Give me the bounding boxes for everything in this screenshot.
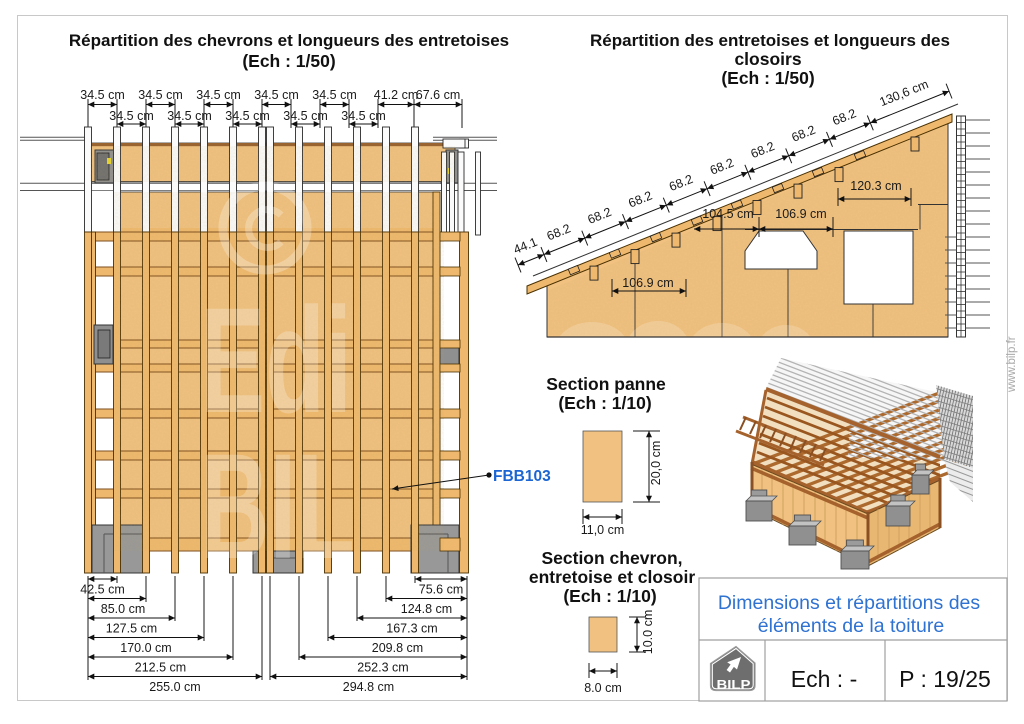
svg-text:41.2 cm: 41.2 cm: [374, 88, 418, 102]
svg-text:20,0 cm: 20,0 cm: [649, 441, 663, 485]
svg-text:34.5 cm: 34.5 cm: [109, 109, 153, 123]
svg-text:Dimensions et répartitions des: Dimensions et répartitions des: [718, 592, 981, 614]
svg-text:FBB103: FBB103: [493, 468, 551, 485]
svg-text:34.5 cm: 34.5 cm: [138, 88, 182, 102]
svg-text:Ech : -: Ech : -: [791, 666, 857, 692]
svg-text:www.bilp.fr: www.bilp.fr: [1006, 336, 1018, 393]
svg-text:42.5 cm: 42.5 cm: [80, 583, 124, 597]
svg-text:212.5 cm: 212.5 cm: [135, 661, 186, 675]
svg-text:167.3 cm: 167.3 cm: [386, 622, 437, 636]
svg-text:75.6 cm: 75.6 cm: [419, 583, 463, 597]
svg-text:11,0 cm: 11,0 cm: [581, 523, 625, 537]
svg-text:209.8 cm: 209.8 cm: [372, 641, 423, 655]
svg-text:Section chevron,: Section chevron,: [541, 548, 682, 568]
svg-text:Edi: Edi: [200, 276, 352, 444]
svg-text:Répartition des chevrons et lo: Répartition des chevrons et longueurs de…: [69, 31, 509, 50]
svg-text:170.0 cm: 170.0 cm: [120, 641, 171, 655]
svg-text:104.5 cm: 104.5 cm: [702, 207, 753, 221]
svg-text:8.0 cm: 8.0 cm: [584, 681, 622, 695]
svg-text:entretoise et closoir: entretoise et closoir: [529, 567, 695, 587]
svg-text:120.3 cm: 120.3 cm: [850, 179, 901, 193]
svg-text:124.8 cm: 124.8 cm: [401, 602, 452, 616]
svg-text:127.5 cm: 127.5 cm: [106, 622, 157, 636]
svg-text:(Ech : 1/10): (Ech : 1/10): [558, 393, 651, 413]
svg-text:closoirs: closoirs: [734, 49, 801, 69]
svg-text:Section panne: Section panne: [546, 374, 666, 394]
svg-text:(Ech : 1/50): (Ech : 1/50): [242, 51, 335, 71]
svg-text:34.5 cm: 34.5 cm: [283, 109, 327, 123]
svg-text:294.8 cm: 294.8 cm: [343, 680, 394, 694]
svg-text:(Ech : 1/10): (Ech : 1/10): [563, 586, 656, 606]
svg-text:85.0 cm: 85.0 cm: [101, 602, 145, 616]
svg-text:éléments de la toiture: éléments de la toiture: [758, 615, 944, 637]
svg-text:Répartition des entretoises et: Répartition des entretoises et longueurs…: [590, 31, 950, 50]
svg-text:252.3 cm: 252.3 cm: [357, 661, 408, 675]
svg-text:34.5 cm: 34.5 cm: [80, 88, 124, 102]
svg-text:34.5 cm: 34.5 cm: [312, 88, 356, 102]
svg-text:34.5 cm: 34.5 cm: [167, 109, 211, 123]
svg-text:BILP: BILP: [717, 678, 751, 692]
svg-text:34.5 cm: 34.5 cm: [341, 109, 385, 123]
svg-text:BIL: BIL: [200, 422, 355, 590]
svg-text:34.5 cm: 34.5 cm: [254, 88, 298, 102]
svg-text:10.0 cm: 10.0 cm: [641, 610, 655, 654]
svg-text:106.9 cm: 106.9 cm: [775, 207, 826, 221]
svg-text:34.5 cm: 34.5 cm: [225, 109, 269, 123]
svg-text:(Ech : 1/50): (Ech : 1/50): [721, 68, 814, 88]
svg-text:P : 19/25: P : 19/25: [899, 666, 991, 692]
svg-text:255.0 cm: 255.0 cm: [149, 680, 200, 694]
svg-text:67.6 cm: 67.6 cm: [416, 88, 460, 102]
svg-text:106.9 cm: 106.9 cm: [622, 276, 673, 290]
svg-text:34.5 cm: 34.5 cm: [196, 88, 240, 102]
